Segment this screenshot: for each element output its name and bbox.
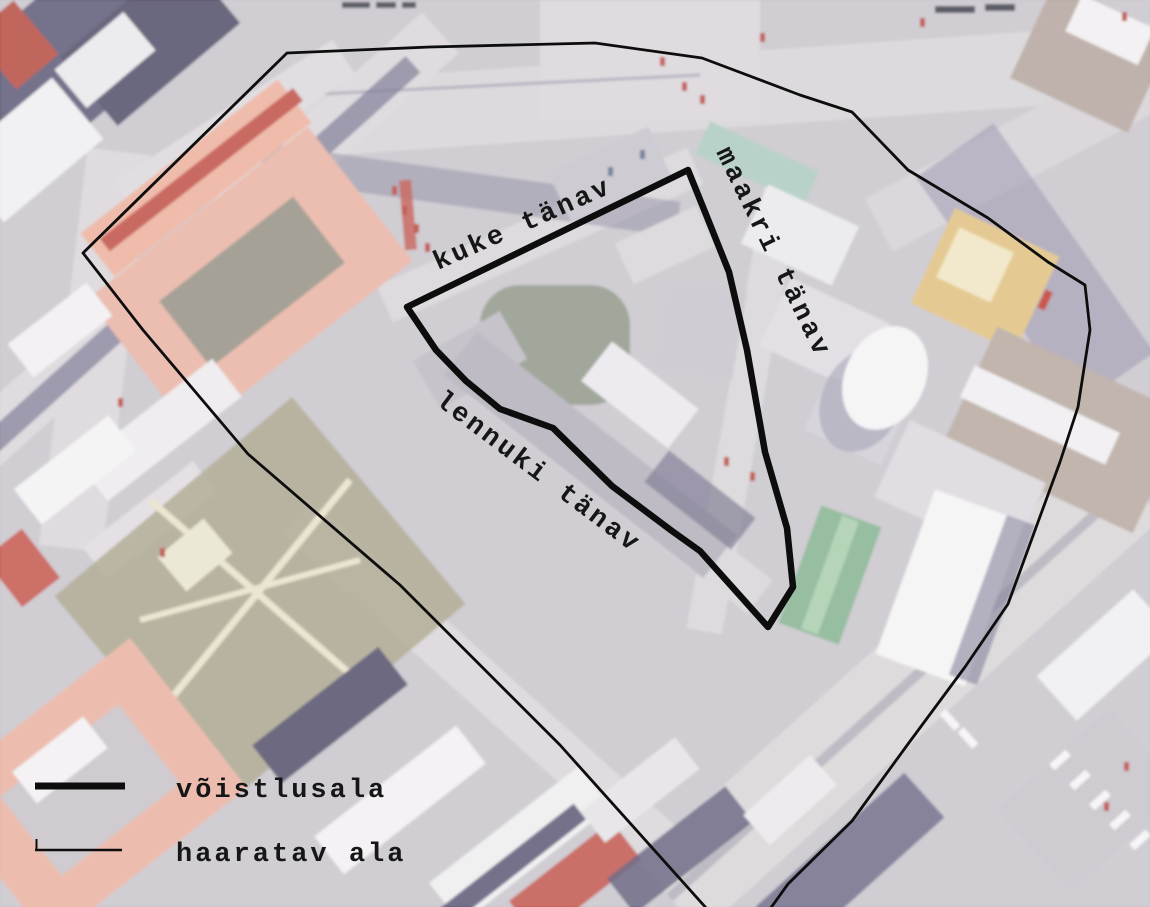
legend-label-covered-area: haaratav ala [176, 840, 406, 870]
aerial-map: kuke tänav maakri tänav lennuki tänav võ… [0, 0, 1150, 907]
legend-label-competition-area: võistlusala [176, 776, 387, 806]
